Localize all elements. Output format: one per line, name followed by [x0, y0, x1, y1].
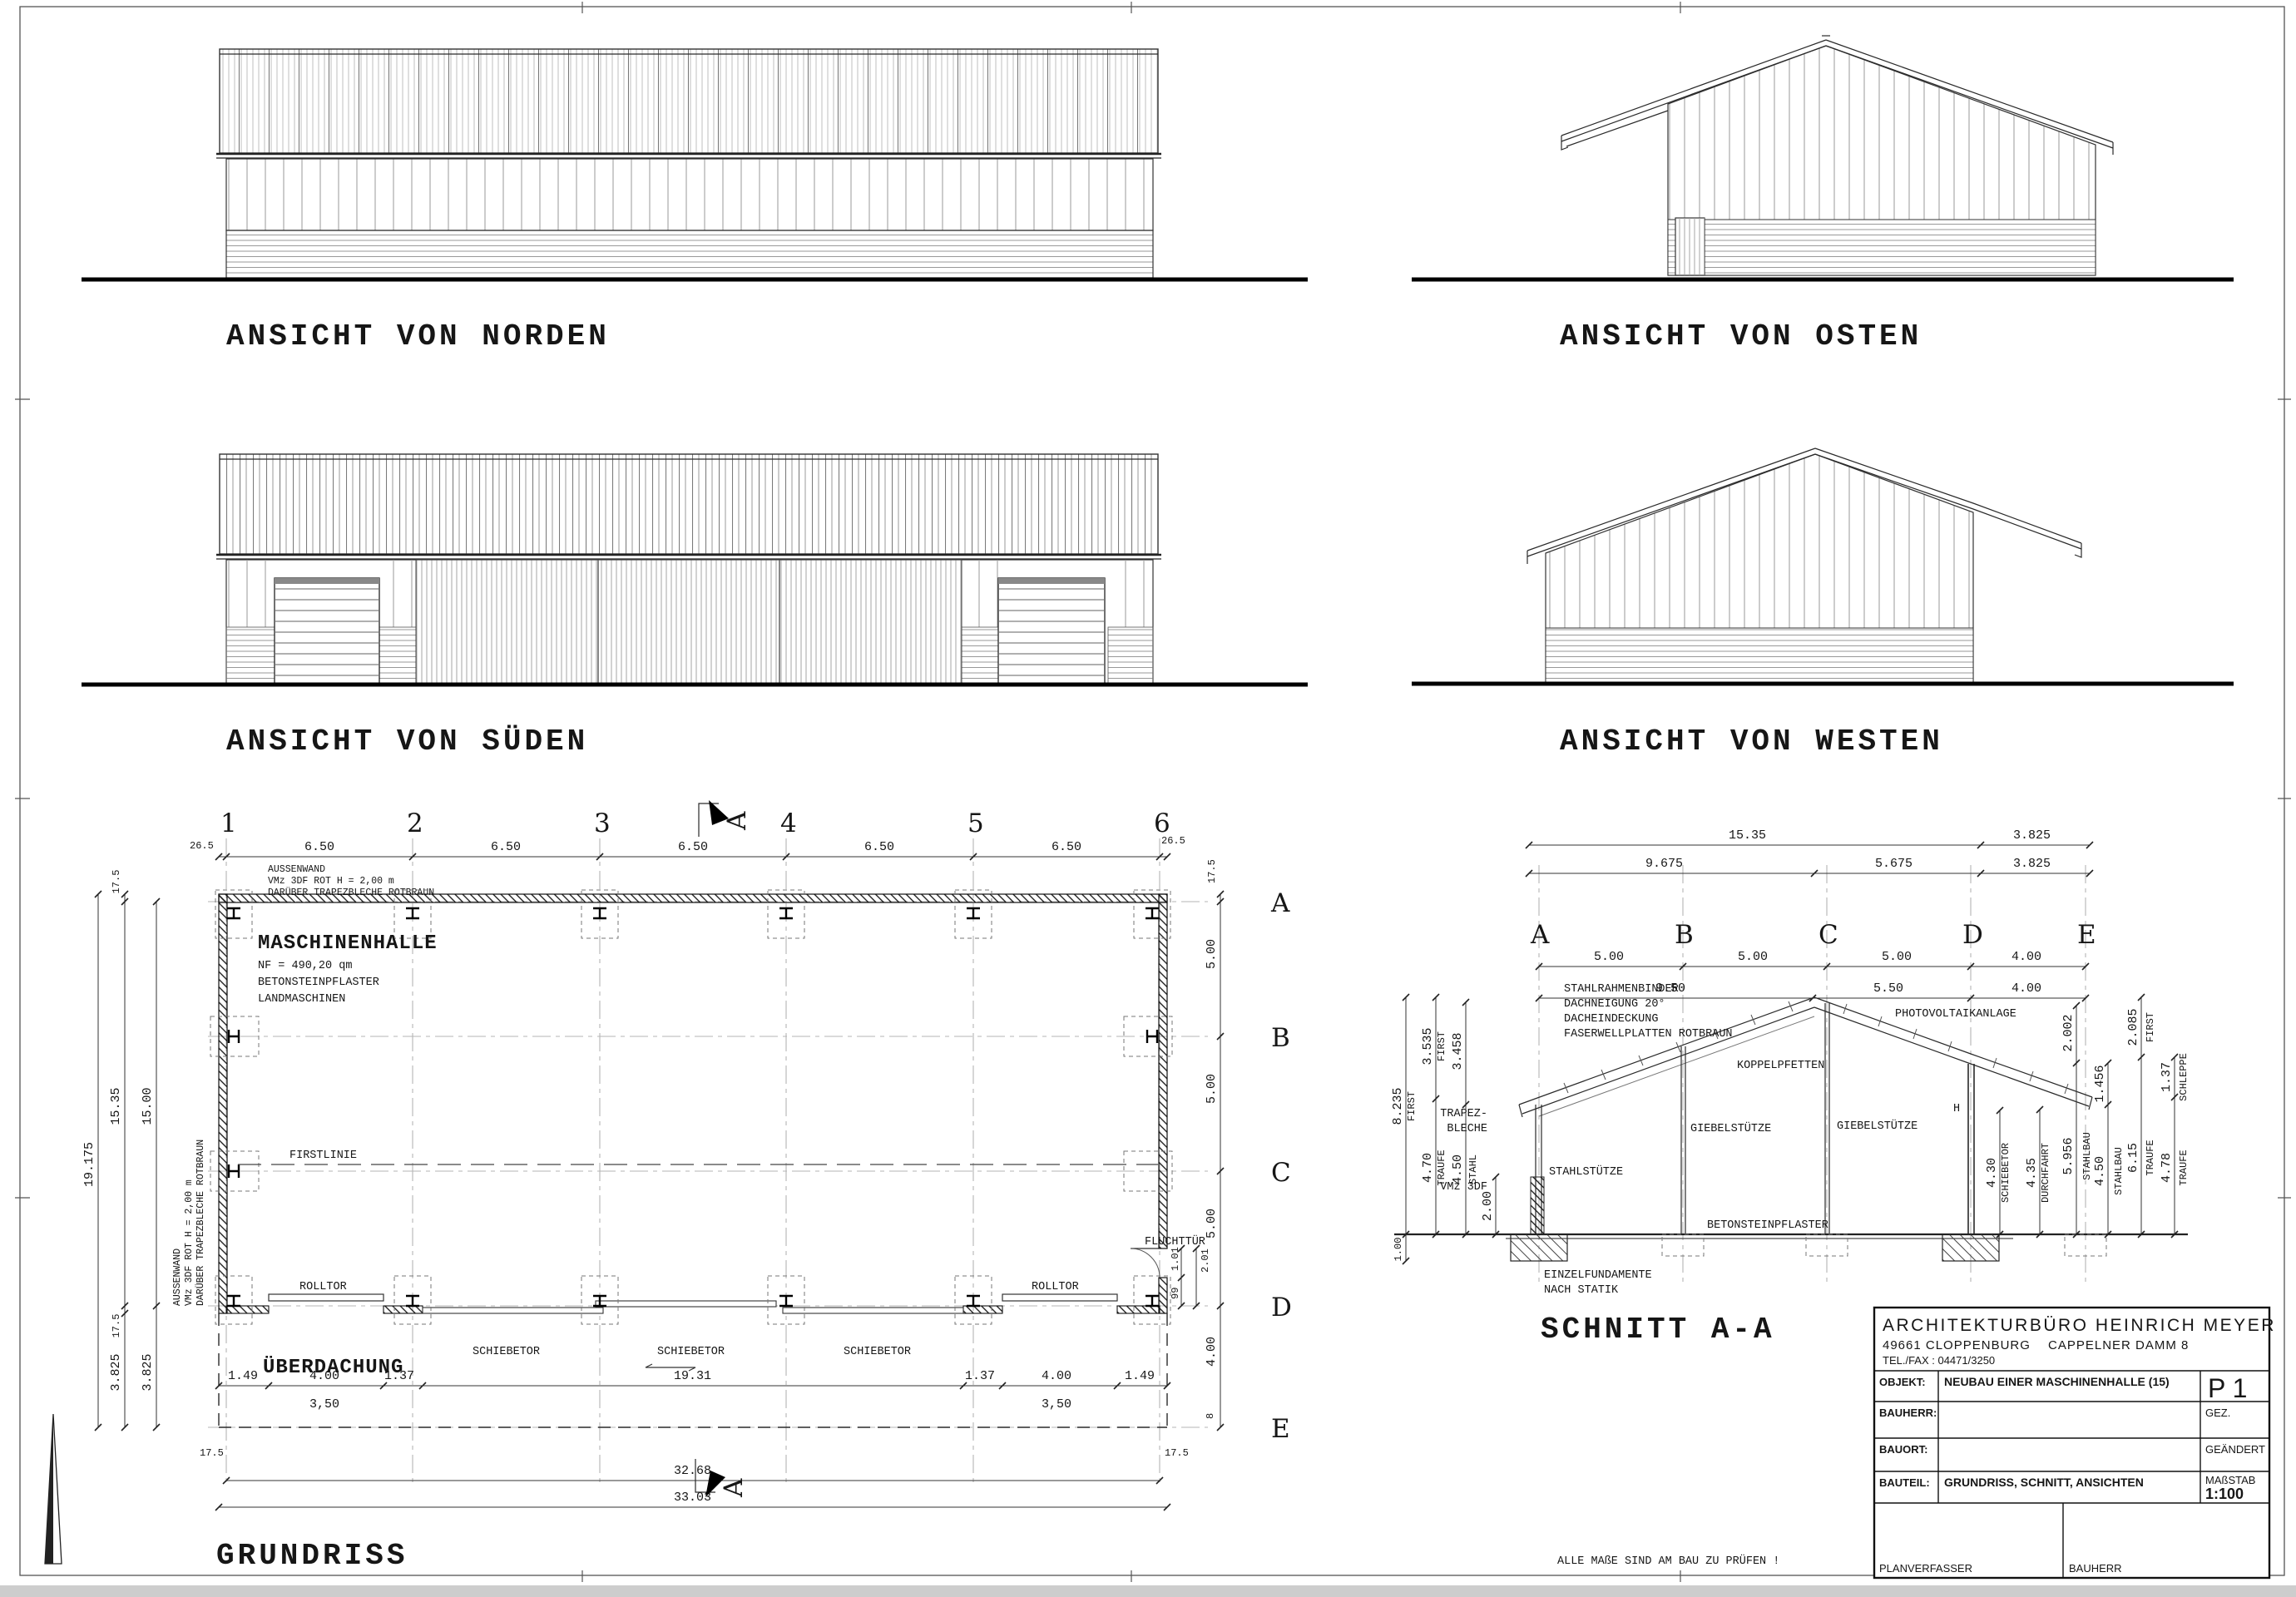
- svg-text:VMz 3DF ROT H = 2,00 m: VMz 3DF ROT H = 2,00 m: [184, 1179, 195, 1306]
- plan-door-dims: 1.01 2.01 99: [1170, 1247, 1211, 1306]
- tb-objekt: NEUBAU EINER MASCHINENHALLE (15): [1944, 1375, 2170, 1388]
- tb-gez: GEZ.: [2205, 1407, 2230, 1419]
- dim: 5.00: [1738, 950, 1768, 964]
- plan-schiebetor-label: SCHIEBETOR: [844, 1346, 911, 1358]
- tb-massstab: 1:100: [2205, 1486, 2244, 1502]
- plan-wall-note-top: VMz 3DF ROT H = 2,00 m: [268, 876, 394, 887]
- plan-row-C: C: [1271, 1158, 1291, 1188]
- title-north: ANSICHT VON NORDEN: [226, 319, 610, 354]
- dim: 1.49: [228, 1369, 258, 1383]
- plan-schiebetor-2: [596, 1301, 776, 1307]
- plan-axis-5: 5: [967, 808, 984, 838]
- dim: 3.825: [2013, 828, 2051, 843]
- title-section: SCHNITT A-A: [1541, 1313, 1775, 1347]
- section-pflaster-label: BETONSTEINPFLASTER: [1707, 1219, 1828, 1232]
- svg-text:DARÜBER TRAPEZBLECHE ROTBRAUN: DARÜBER TRAPEZBLECHE ROTBRAUN: [195, 1140, 206, 1306]
- section-view: 15.35 3.825 9.675 5.675 3.825 A B C D E …: [1391, 828, 2190, 1347]
- dim: 5.00: [1594, 950, 1624, 964]
- dim: 5.50: [1873, 981, 1903, 996]
- dim: 4.00: [2011, 950, 2041, 964]
- tb-objekt-label: OBJEKT:: [1879, 1376, 1926, 1388]
- dim: 3.825: [109, 1353, 123, 1391]
- section-letter: D: [1962, 920, 1983, 950]
- plan-firstlinie: FIRSTLINIE: [289, 1150, 357, 1162]
- svg-text:2.01: 2.01: [1200, 1248, 1211, 1273]
- dim: 17.5: [1165, 1447, 1189, 1459]
- plan-schiebetor-1: [423, 1308, 603, 1313]
- tb-massstab-label: MAßSTAB: [2205, 1474, 2255, 1486]
- title-west: ANSICHT VON WESTEN: [1560, 724, 1943, 759]
- section-trapez-label: BLECHE: [1447, 1123, 1487, 1135]
- svg-text:TRAUFE: TRAUFE: [2145, 1140, 2156, 1175]
- svg-text:A: A: [722, 811, 752, 831]
- section-right-dims: 4.30 SCHIEBETOR 4.35 DURCHFAHRT 2.002 5.…: [1985, 997, 2190, 1234]
- tb-bauherr-footer: BAUHERR: [2069, 1562, 2122, 1575]
- tb-phone: TEL./FAX : 04471/3250: [1883, 1354, 1995, 1367]
- plan-row-E: E: [1271, 1414, 1290, 1444]
- section-trapez-label: TRAPEZ-: [1440, 1108, 1487, 1120]
- plan-row-A: A: [1270, 888, 1290, 918]
- svg-text:5.956: 5.956: [2061, 1137, 2076, 1174]
- section-fundament-label: EINZELFUNDAMENTE: [1544, 1269, 1652, 1282]
- dim: 5.00: [1205, 939, 1219, 969]
- dim: 3,50: [1042, 1397, 1071, 1412]
- section-binder-note: STAHLRAHMENBINDER: [1564, 983, 1679, 996]
- tb-bauort-label: BAUORT:: [1879, 1443, 1928, 1456]
- section-binder-note: DACHNEIGUNG 20°: [1564, 998, 1665, 1011]
- section-giebel-label: GIEBELSTÜTZE: [1690, 1123, 1771, 1135]
- svg-text:STAHL: STAHL: [1467, 1154, 1479, 1184]
- section-letter: A: [1530, 920, 1550, 950]
- dim: 5.00: [1882, 950, 1912, 964]
- svg-text:3.458: 3.458: [1451, 1032, 1465, 1070]
- plan-room-name: MASCHINENHALLE: [258, 932, 438, 955]
- svg-text:2.085: 2.085: [2126, 1008, 2140, 1046]
- section-fundament-label: NACH STATIK: [1544, 1284, 1619, 1297]
- dim: 3,50: [309, 1397, 339, 1412]
- dim: 19.175: [82, 1142, 96, 1187]
- svg-text:6.15: 6.15: [2126, 1143, 2140, 1173]
- svg-text:4.50: 4.50: [2093, 1156, 2107, 1186]
- svg-text:STAHLBAU: STAHLBAU: [2081, 1132, 2093, 1180]
- plan-foundation-outlines: [210, 890, 1172, 1324]
- section-binder-note: DACHEINDECKUNG: [1564, 1013, 1658, 1026]
- tb-firm: ARCHITEKTURBÜRO HEINRICH MEYER: [1883, 1316, 2276, 1335]
- plan-wall-note-left: AUSSENWAND VMz 3DF ROT H = 2,00 m DARÜBE…: [172, 1140, 206, 1306]
- dim: 17.5: [200, 1447, 224, 1459]
- svg-text:1.456: 1.456: [2093, 1065, 2107, 1102]
- plan-axis-6: 6: [1154, 808, 1170, 838]
- plan-axis-1: 1: [220, 808, 237, 838]
- dim: 17.5: [111, 1314, 122, 1338]
- svg-text:3.535: 3.535: [1421, 1027, 1435, 1065]
- plan-axis-3: 3: [594, 808, 611, 838]
- section-giebel-label: GIEBELSTÜTZE: [1837, 1120, 1917, 1133]
- section-pv-label: PHOTOVOLTAIKANLAGE: [1895, 1008, 2016, 1021]
- dim: 8: [1205, 1413, 1216, 1419]
- plan-room-use: LANDMASCHINEN: [258, 993, 345, 1006]
- elevation-north: ANSICHT VON NORDEN: [82, 49, 1308, 354]
- section-letter: C: [1818, 920, 1838, 950]
- plan-row-D: D: [1271, 1293, 1292, 1323]
- dim: 26.5: [1161, 835, 1185, 847]
- title-south: ANSICHT VON SÜDEN: [226, 724, 588, 759]
- dim: 17.5: [1206, 859, 1218, 883]
- dim: 4.00: [1042, 1369, 1071, 1383]
- tb-bauteil: GRUNDRISS, SCHNITT, ANSICHTEN: [1944, 1476, 2144, 1489]
- svg-text:99: 99: [1170, 1288, 1181, 1299]
- plan-room-floor: BETONSTEINPFLASTER: [258, 976, 379, 989]
- plan-axis-2: 2: [407, 808, 423, 838]
- svg-text:SCHLEPPE: SCHLEPPE: [2178, 1053, 2190, 1101]
- dim: 32.68: [674, 1464, 711, 1478]
- dim: 4.00: [2011, 981, 2041, 996]
- svg-text:1.00: 1.00: [1393, 1238, 1404, 1262]
- dim: 3.825: [141, 1353, 155, 1391]
- plan-fluchttuer-label: FLUCHTTÜR: [1145, 1236, 1205, 1248]
- dim: 1.49: [1125, 1369, 1155, 1383]
- tb-address2: CAPPELNER DAMM 8: [2048, 1338, 2189, 1352]
- tb-geaendert: GEÄNDERT: [2205, 1443, 2265, 1456]
- plan-schiebetor-3: [783, 1308, 963, 1313]
- plan-rolltor-left: [269, 1294, 383, 1301]
- dim: 5.675: [1875, 857, 1913, 871]
- dim: 3.825: [2013, 857, 2051, 871]
- svg-text:FIRST: FIRST: [2145, 1012, 2156, 1042]
- plan-rolltor-label: ROLLTOR: [299, 1281, 347, 1293]
- dim: 15.35: [109, 1087, 123, 1125]
- plan-rolltor-right: [1002, 1294, 1117, 1301]
- title-plan: GRUNDRISS: [216, 1539, 408, 1573]
- dim: 17.5: [111, 870, 122, 894]
- dim: 5.00: [1205, 1074, 1219, 1104]
- dim: 1.37: [384, 1369, 414, 1383]
- north-arrow: [45, 1414, 62, 1564]
- title-block: ARCHITEKTURBÜRO HEINRICH MEYER 49661 CLO…: [1874, 1308, 2276, 1578]
- svg-text:4.35: 4.35: [2025, 1158, 2039, 1188]
- floor-plan: 1 2 3 4 5 6 A B C D E 26.5 6.50 6.50 6.5…: [82, 800, 1292, 1573]
- tb-address: 49661 CLOPPENBURG: [1883, 1338, 2031, 1352]
- tb-plan-number: P 1: [2208, 1373, 2247, 1403]
- dim: 9.675: [1645, 857, 1683, 871]
- plan-room-area: NF = 490,20 qm: [258, 960, 352, 972]
- svg-text:TRAUFE: TRAUFE: [1436, 1150, 1447, 1185]
- dim: 5.00: [1205, 1209, 1219, 1239]
- plan-rolltor-label: ROLLTOR: [1032, 1281, 1079, 1293]
- section-stahl-label: STAHLSTÜTZE: [1549, 1166, 1623, 1179]
- plan-schiebetor-label: SCHIEBETOR: [473, 1346, 540, 1358]
- svg-text:FIRST: FIRST: [1406, 1091, 1418, 1121]
- section-marker-top: A: [699, 800, 752, 837]
- dim: 6.50: [491, 840, 521, 854]
- svg-text:4.50: 4.50: [1451, 1154, 1465, 1184]
- plan-wall-note-top: AUSSENWAND: [268, 864, 325, 875]
- east-door: [1675, 218, 1705, 275]
- svg-text:SCHIEBETOR: SCHIEBETOR: [2000, 1143, 2011, 1203]
- svg-text:4.70: 4.70: [1421, 1153, 1435, 1183]
- elevation-west: ANSICHT VON WESTEN: [1412, 448, 2234, 759]
- elevation-east: ANSICHT VON OSTEN: [1412, 36, 2234, 354]
- svg-text:8.235: 8.235: [1391, 1087, 1405, 1125]
- section-pfetten-label: KOPPELPFETTEN: [1737, 1060, 1824, 1072]
- plan-schiebetor-label: SCHIEBETOR: [657, 1346, 725, 1358]
- elevation-south: ANSICHT VON SÜDEN: [82, 454, 1308, 759]
- section-letter: E: [2077, 920, 2096, 950]
- section-h-label: H: [1953, 1103, 1960, 1115]
- dim: 6.50: [304, 840, 334, 854]
- svg-text:4.30: 4.30: [1985, 1158, 1999, 1188]
- svg-text:STAHLBAU: STAHLBAU: [2113, 1147, 2125, 1195]
- dim: 15.00: [141, 1087, 155, 1125]
- plan-row-B: B: [1271, 1023, 1290, 1053]
- south-rolltor-right: [998, 578, 1105, 685]
- svg-text:2.002: 2.002: [2061, 1014, 2076, 1051]
- dim: 4.00: [309, 1369, 339, 1383]
- dim: 4.00: [1205, 1337, 1219, 1367]
- architectural-drawing: ANSICHT VON NORDEN ANSICHT VON OSTEN: [0, 0, 2296, 1597]
- svg-text:AUSSENWAND: AUSSENWAND: [172, 1248, 183, 1306]
- drawing-sheet: ANSICHT VON NORDEN ANSICHT VON OSTEN: [0, 0, 2296, 1597]
- dim: 26.5: [190, 840, 214, 852]
- tb-bauteil-label: BAUTEIL:: [1879, 1476, 1930, 1489]
- dim: 1.37: [965, 1369, 995, 1383]
- svg-text:TRAUFE: TRAUFE: [2178, 1150, 2190, 1185]
- svg-text:1.01: 1.01: [1170, 1247, 1181, 1271]
- svg-text:1.37: 1.37: [2160, 1062, 2174, 1092]
- dim: 6.50: [864, 840, 894, 854]
- section-letter: B: [1675, 920, 1694, 950]
- plan-fluchttuer: [1131, 1248, 1160, 1278]
- south-rolltor-left: [275, 578, 379, 685]
- dim: 6.50: [1052, 840, 1081, 854]
- svg-text:FIRST: FIRST: [1436, 1031, 1447, 1061]
- plan-steel-posts: [227, 908, 1159, 1306]
- svg-text:4.78: 4.78: [2160, 1153, 2174, 1183]
- svg-text:A: A: [719, 1478, 749, 1498]
- dim: 6.50: [678, 840, 708, 854]
- plan-axis-4: 4: [780, 808, 797, 838]
- dim: 19.31: [674, 1369, 711, 1383]
- svg-text:DURCHFAHRT: DURCHFAHRT: [2040, 1143, 2051, 1203]
- section-binder-note: FASERWELLPLATTEN ROTBRAUN: [1564, 1028, 1733, 1041]
- svg-text:2.00: 2.00: [1481, 1191, 1495, 1221]
- dim: 15.35: [1729, 828, 1766, 843]
- title-east: ANSICHT VON OSTEN: [1560, 319, 1922, 354]
- tb-bauherr-label: BAUHERR:: [1879, 1407, 1937, 1419]
- general-note: ALLE MAßE SIND AM BAU ZU PRÜFEN !: [1557, 1555, 1779, 1568]
- tb-planverfasser: PLANVERFASSER: [1879, 1562, 1972, 1575]
